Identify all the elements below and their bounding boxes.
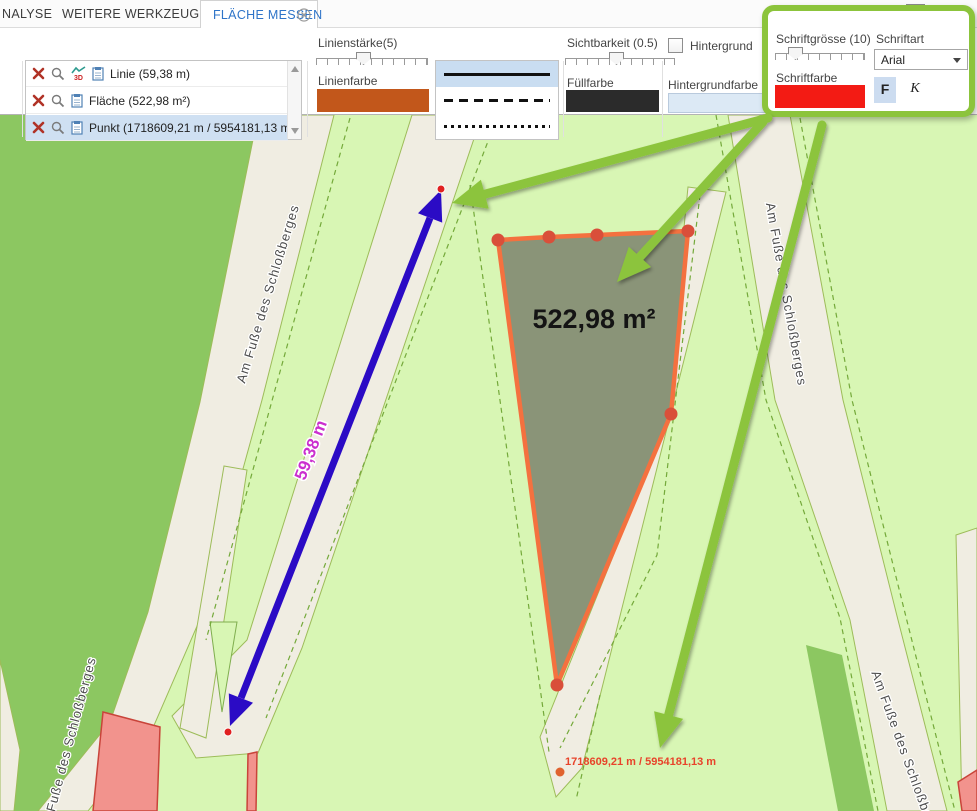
measured-point-dot[interactable]	[556, 768, 565, 777]
line-endpoint-top[interactable]	[437, 185, 445, 193]
map-canvas[interactable]: Am Fuße des Schloßberges Am Fuße des Sch…	[0, 115, 977, 811]
separator	[22, 61, 23, 137]
background-color-swatch[interactable]	[668, 93, 772, 113]
italic-button[interactable]: K	[904, 77, 926, 103]
font-size-label: Schriftgrösse (10)	[776, 32, 871, 46]
font-color-label: Schriftfarbe	[776, 71, 837, 85]
line-style-dashed[interactable]	[436, 87, 558, 113]
measurement-label: Linie (59,38 m)	[110, 67, 190, 81]
tab-flaeche-messen[interactable]: FLÄCHE MESSEN	[200, 0, 318, 28]
line-color-label: Linienfarbe	[318, 74, 377, 88]
area-measurement-label: 522,98 m²	[532, 304, 655, 334]
svg-text:3D: 3D	[74, 75, 83, 81]
line-thickness-slider[interactable]	[316, 52, 428, 68]
line-style-solid[interactable]	[436, 61, 558, 87]
close-tab-icon[interactable]	[297, 8, 311, 22]
measurement-row-line[interactable]: 3D Linie (59,38 m)	[26, 61, 288, 87]
chevron-down-icon	[953, 58, 961, 63]
tab-weitere-werkzeuge[interactable]: WEITERE WERKZEUGE	[62, 7, 208, 21]
line-style-dotted[interactable]	[436, 113, 558, 139]
font-panel-highlight-box: Schriftgrösse (10) Schriftart Arial Schr…	[762, 5, 975, 117]
font-family-select[interactable]: Arial	[874, 49, 968, 70]
separator	[307, 61, 308, 137]
measurement-row-area[interactable]: Fläche (522,98 m²)	[26, 88, 288, 114]
list-scrollbar[interactable]	[287, 61, 301, 139]
building-1	[93, 712, 160, 811]
delete-icon[interactable]	[32, 121, 45, 134]
zoom-to-icon[interactable]	[51, 67, 65, 81]
report-icon[interactable]	[92, 67, 104, 81]
measurement-list: 3D Linie (59,38 m) Fläche (522,98 m²) Pu…	[25, 60, 302, 140]
visibility-slider[interactable]	[565, 52, 675, 68]
delete-icon[interactable]	[32, 94, 45, 107]
fill-color-label: Füllfarbe	[567, 76, 614, 90]
fill-color-swatch[interactable]	[566, 90, 659, 112]
line-endpoint-bottom[interactable]	[224, 728, 232, 736]
profile-3d-icon[interactable]: 3D	[71, 66, 86, 81]
visibility-label: Sichtbarkeit (0.5)	[567, 36, 658, 50]
zoom-to-icon[interactable]	[51, 121, 65, 135]
bold-button[interactable]: F	[874, 77, 896, 103]
point-measurement-label: 1718609,21 m / 5954181,13 m	[565, 756, 716, 768]
separator	[662, 61, 663, 137]
background-color-label: Hintergrundfarbe	[668, 78, 758, 92]
measurement-row-point[interactable]: Punkt (1718609,21 m / 5954181,13 m)	[26, 115, 288, 141]
building-2	[247, 752, 257, 811]
font-family-label: Schriftart	[876, 32, 924, 46]
background-checkbox-label: Hintergrund	[690, 39, 753, 53]
scroll-down-icon[interactable]	[291, 128, 299, 134]
measurement-label: Punkt (1718609,21 m / 5954181,13 m)	[89, 121, 294, 135]
report-icon[interactable]	[71, 94, 83, 108]
separator	[563, 61, 564, 137]
scroll-up-icon[interactable]	[291, 66, 299, 72]
background-checkbox[interactable]	[668, 38, 683, 53]
font-family-value: Arial	[881, 53, 905, 67]
tab-analyse[interactable]: NALYSE	[2, 7, 52, 21]
font-color-swatch[interactable]	[775, 85, 865, 108]
line-style-list	[435, 60, 559, 140]
measurement-label: Fläche (522,98 m²)	[89, 94, 190, 108]
delete-icon[interactable]	[32, 67, 45, 80]
line-color-swatch[interactable]	[317, 89, 429, 112]
report-icon[interactable]	[71, 121, 83, 135]
line-thickness-label: Linienstärke(5)	[318, 36, 397, 50]
zoom-to-icon[interactable]	[51, 94, 65, 108]
font-size-slider[interactable]	[775, 47, 865, 63]
